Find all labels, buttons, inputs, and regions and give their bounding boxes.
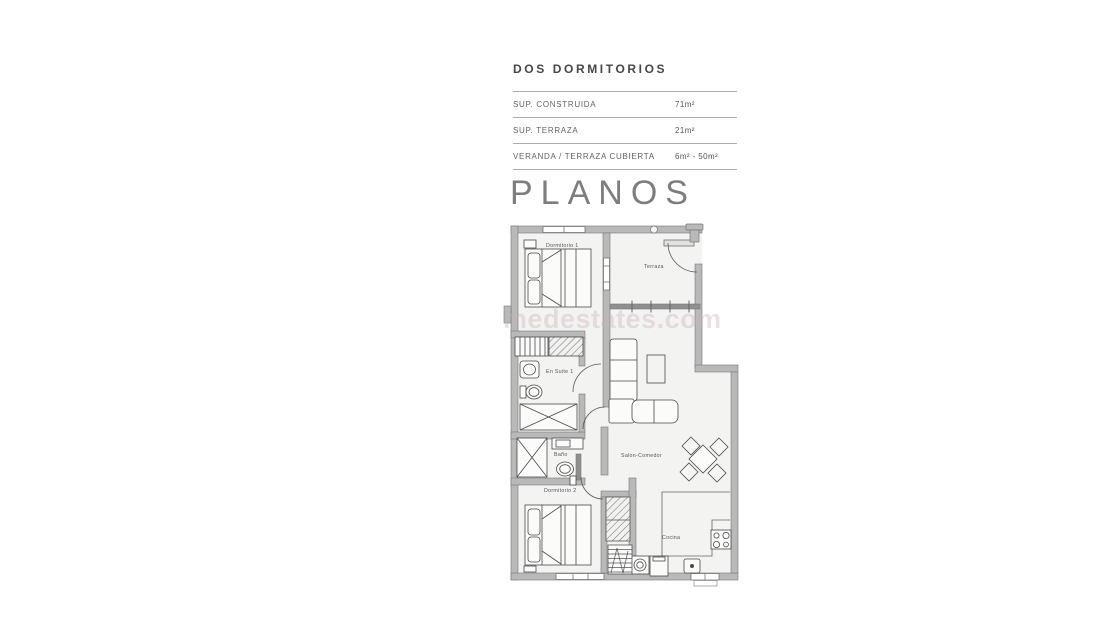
spec-label: SUP. CONSTRUIDA: [513, 100, 675, 109]
floorplan-svg: Dormitorio 1 Terraza En Suite 1 Baño Dor…: [500, 218, 750, 592]
cabinet-icon: [552, 438, 583, 449]
stairs-shaft: [606, 497, 632, 574]
spec-table: SUP. CONSTRUIDA 71m² SUP. TERRAZA 21m² V…: [513, 91, 737, 170]
stove-icon: [711, 530, 731, 549]
spec-row-terrace: SUP. TERRAZA 21m²: [513, 117, 737, 143]
listing-title: DOS DORMITORIOS: [513, 62, 667, 76]
room-label-salon: Salon-Comedor: [621, 453, 662, 459]
spec-row-constructed: SUP. CONSTRUIDA 71m²: [513, 91, 737, 117]
washing-machine-icon: [631, 556, 649, 574]
spec-value: 71m²: [675, 100, 737, 109]
spec-label: SUP. TERRAZA: [513, 126, 675, 135]
room-label-ensuite: En Suite 1: [546, 369, 573, 375]
planos-heading: PLANOS: [510, 174, 696, 213]
shaft-hatched-icon: [606, 497, 630, 541]
closet-hatched-icon: [549, 337, 583, 356]
spec-label: VERANDA / TERRAZA CUBIERTA: [513, 152, 675, 161]
light-fixture-icon: [651, 226, 658, 233]
room-label-terraza: Terraza: [644, 264, 664, 270]
watermark: medestates.com: [503, 304, 722, 334]
spec-value: 21m²: [675, 126, 737, 135]
kitchen-sink-icon: [684, 559, 700, 573]
shower-icon: [517, 438, 547, 477]
spec-value: 6m² - 50m²: [675, 152, 737, 161]
toilet-icon: [520, 385, 542, 399]
room-label-dormitorio1: Dormitorio 1: [546, 243, 578, 249]
bed-dormitorio2-icon: [524, 505, 591, 572]
stairs-icon: [608, 545, 632, 574]
spec-row-veranda: VERANDA / TERRAZA CUBIERTA 6m² - 50m²: [513, 143, 737, 169]
room-label-cocina: Cocina: [662, 535, 680, 541]
bed-dormitorio1-icon: [524, 240, 591, 307]
room-label-bano: Baño: [554, 452, 568, 458]
sink-icon: [520, 361, 539, 378]
room-label-dormitorio2: Dormitorio 2: [544, 488, 576, 494]
dishwasher-icon: [650, 556, 668, 576]
shower-icon: [520, 404, 577, 430]
wardrobe-icon: [515, 337, 548, 356]
page: DOS DORMITORIOS SUP. CONSTRUIDA 71m² SUP…: [0, 0, 1110, 626]
